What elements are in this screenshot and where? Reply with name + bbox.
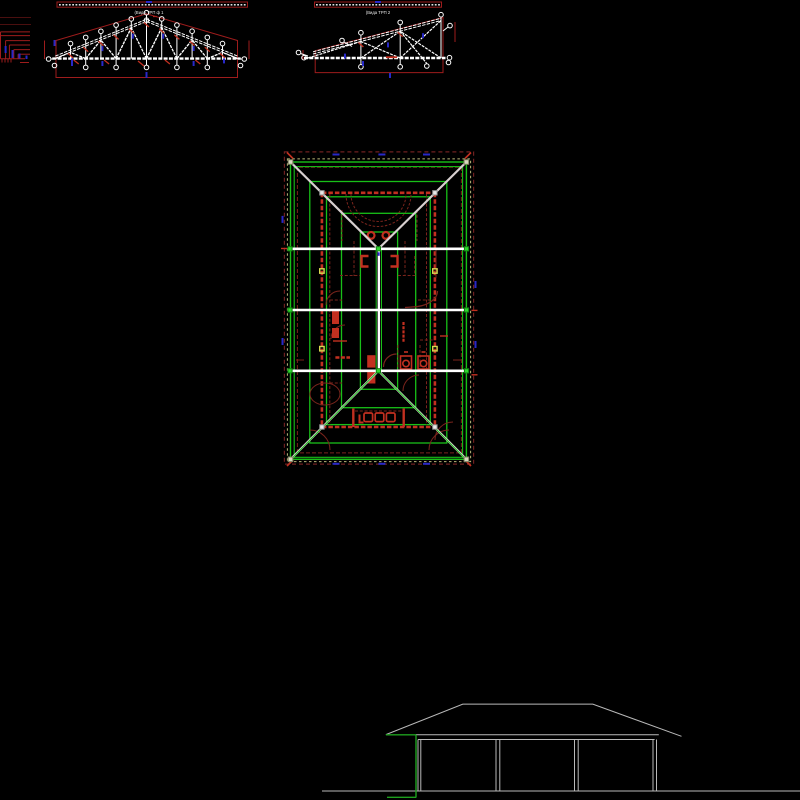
svg-text:(Вида ТРП 2: (Вида ТРП 2	[366, 10, 391, 15]
